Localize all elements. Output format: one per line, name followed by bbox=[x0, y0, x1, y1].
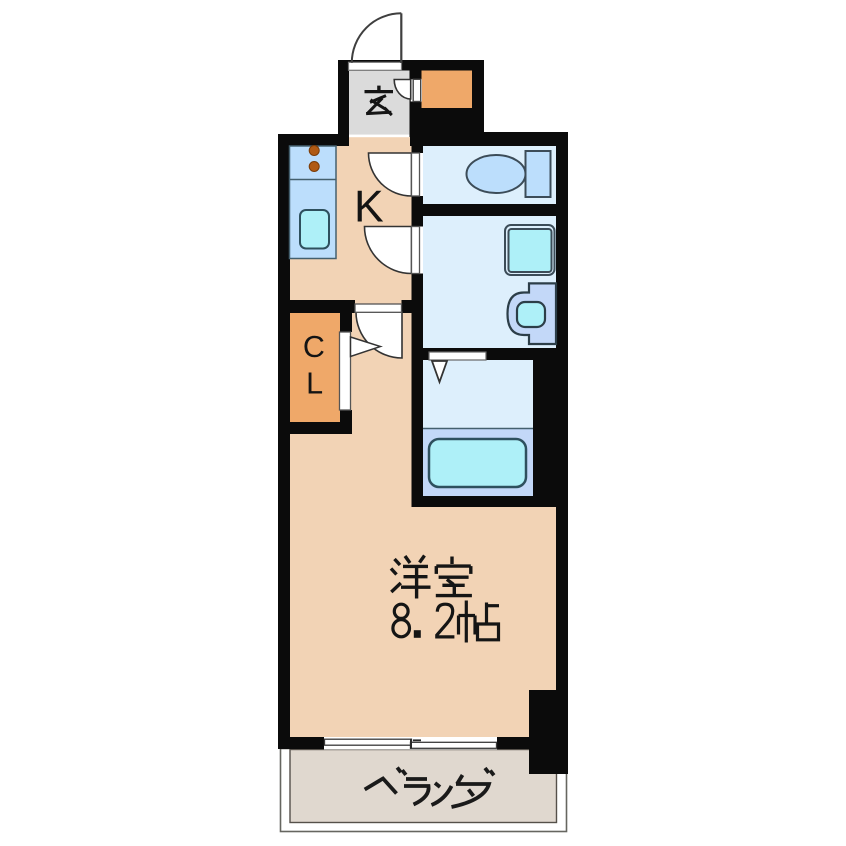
svg-text:L: L bbox=[306, 367, 323, 401]
svg-text:K: K bbox=[354, 182, 384, 231]
svg-text:C: C bbox=[303, 330, 325, 364]
